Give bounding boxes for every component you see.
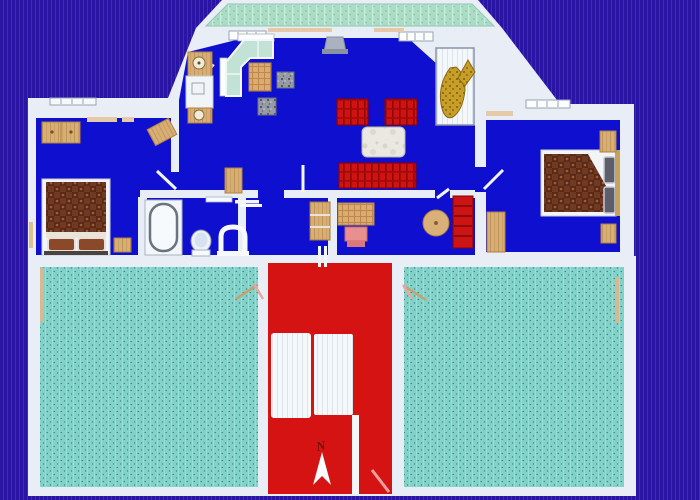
deck-right-door-strip <box>615 277 619 323</box>
window-sill-bedroom-right <box>486 111 513 116</box>
deck-left-door-strip <box>40 268 44 322</box>
chair-pink <box>345 227 367 241</box>
sofa-long <box>339 163 416 188</box>
sink-counter <box>217 251 249 256</box>
toilet-tank <box>192 250 210 256</box>
coffee-table-marble <box>362 127 405 157</box>
window-sill-bedroom-left-a <box>87 117 117 122</box>
bed-left-footboard <box>44 251 108 255</box>
bed-left-pillow-a <box>48 238 75 251</box>
floor-plan-shapes <box>28 0 636 496</box>
kitchen-counter <box>186 76 213 108</box>
bed-right-pillow-b <box>604 187 615 213</box>
table-round-center <box>434 221 438 225</box>
window-sill-living-a <box>268 28 332 32</box>
floor-plan-screenshot: N <box>0 0 700 500</box>
porch-door-right <box>324 246 327 267</box>
bench-hall <box>310 202 330 240</box>
chair-pink-base <box>347 241 365 247</box>
porch-stairs-right <box>314 334 353 415</box>
dresser-left-knob-a <box>50 130 53 133</box>
cabinet-hall <box>225 168 242 193</box>
fireplace-hearth <box>322 49 348 54</box>
window-living-right <box>399 32 433 41</box>
ottoman-a <box>277 72 294 88</box>
bookshelf-red <box>453 196 473 248</box>
towel-bar <box>240 204 262 207</box>
nightstand-right-bottom <box>601 224 616 243</box>
deck-left <box>40 267 258 487</box>
window-bedroom-right-top <box>526 100 570 108</box>
window-sill-living-b <box>374 28 404 32</box>
dresser-left-knob-b <box>69 130 72 133</box>
dresser-right <box>487 212 505 252</box>
nightstand-bed-left <box>114 238 131 252</box>
deck-right <box>404 267 624 487</box>
loveseat-a <box>337 99 368 125</box>
window-sill-bedroom-left-b <box>122 117 134 122</box>
bed-left-pillow-b <box>78 238 105 251</box>
bed-left-quilt <box>46 182 106 232</box>
bed-right-pillow-a <box>604 157 615 183</box>
coffee-table-wicker <box>249 63 271 91</box>
window-bedroom-left-west <box>29 222 33 248</box>
porch-door-left <box>318 246 321 267</box>
wall-bedroom-right-west-upper <box>475 112 486 167</box>
porch-partition-wall <box>352 415 359 494</box>
ottoman-b <box>258 98 276 115</box>
bathtub <box>150 204 177 251</box>
wall-bedroom-right-west-lower <box>475 192 486 255</box>
kitchen-sink-drain <box>198 62 201 65</box>
bed-right-headboard <box>615 150 620 216</box>
door-leaf-bath <box>235 200 259 204</box>
porch-stairs-left <box>271 333 311 418</box>
loveseat-b <box>385 99 417 125</box>
window-bedroom-left-top <box>50 98 96 105</box>
roof-deck <box>206 4 494 26</box>
wall-hall-north-b <box>284 190 435 198</box>
kitchen-burner <box>194 110 204 120</box>
bath-shelf <box>206 197 232 202</box>
nightstand-right-top <box>600 131 616 152</box>
toilet-bowl-inner <box>195 233 208 248</box>
table-hall <box>338 203 374 225</box>
floor-plan-canvas: N <box>0 0 700 500</box>
